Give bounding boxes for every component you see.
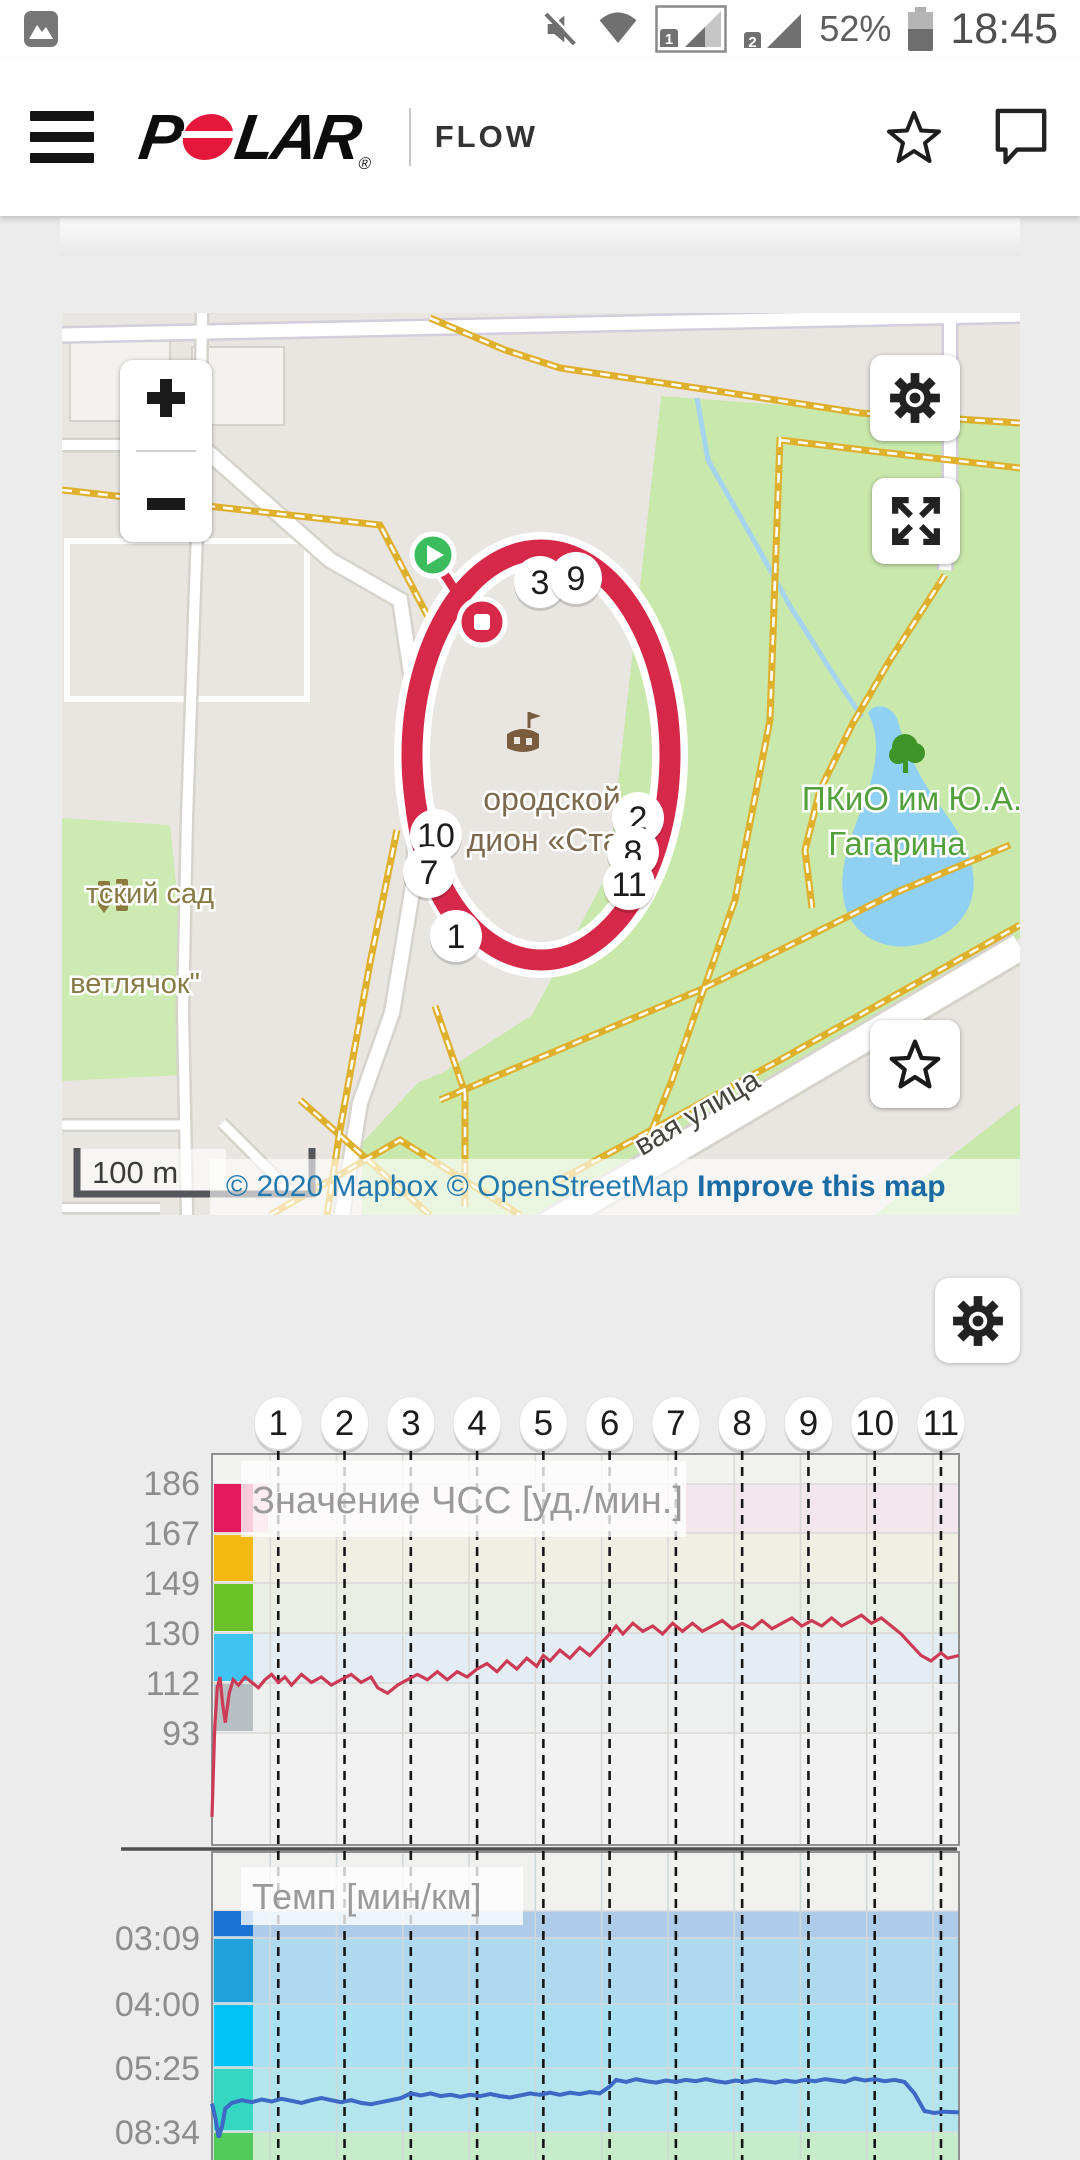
svg-text:167: 167 bbox=[143, 1515, 200, 1553]
axis-tick-labels: 1861671491301129303:0904:0005:2508:34 bbox=[115, 1465, 200, 2152]
map-settings-button[interactable] bbox=[870, 355, 960, 441]
svg-text:1: 1 bbox=[665, 31, 673, 48]
status-bar: 1 2 52% 18:45 bbox=[0, 0, 1080, 58]
park-label-1: ПКиО им Ю.А. bbox=[802, 780, 1020, 817]
kindergarten-label-1: тский сад bbox=[86, 878, 214, 910]
svg-text:93: 93 bbox=[162, 1715, 200, 1753]
svg-text:5: 5 bbox=[534, 1404, 553, 1443]
screenshot-notification-icon bbox=[22, 10, 60, 48]
svg-text:4: 4 bbox=[467, 1404, 486, 1443]
km-marker-row[interactable]: 1234567891011 bbox=[254, 1397, 965, 1454]
flow-wordmark: FLOW bbox=[435, 119, 538, 155]
stop-marker bbox=[459, 599, 505, 645]
svg-text:04:00: 04:00 bbox=[115, 1986, 200, 2024]
svg-text:149: 149 bbox=[143, 1565, 200, 1603]
svg-text:08:34: 08:34 bbox=[115, 2114, 200, 2152]
sim2-signal-icon: 2 bbox=[743, 6, 803, 52]
star-icon bbox=[887, 1036, 943, 1092]
svg-text:1: 1 bbox=[269, 1404, 288, 1443]
scale-label: 100 m bbox=[92, 1155, 178, 1191]
kindergarten-label-2: ветлячок" bbox=[70, 968, 200, 1000]
zoom-divider bbox=[136, 450, 196, 452]
svg-text:8: 8 bbox=[732, 1404, 751, 1443]
svg-text:03:09: 03:09 bbox=[115, 1920, 200, 1958]
svg-text:186: 186 bbox=[143, 1465, 200, 1503]
svg-text:130: 130 bbox=[143, 1615, 200, 1653]
svg-text:1: 1 bbox=[447, 918, 466, 956]
sim1-signal-icon: 1 bbox=[655, 5, 727, 53]
polar-flow-activity-page: { "status_bar": {"time": "18:45", "batte… bbox=[0, 0, 1080, 2160]
svg-text:6: 6 bbox=[600, 1404, 619, 1443]
zoom-out-button[interactable] bbox=[143, 481, 189, 527]
app-header: P LAR ® FLOW bbox=[0, 58, 1080, 216]
polar-logo[interactable]: P LAR ® bbox=[135, 100, 380, 174]
battery-icon bbox=[907, 7, 934, 52]
svg-text:112: 112 bbox=[146, 1665, 200, 1703]
svg-text:05:25: 05:25 bbox=[115, 2050, 200, 2088]
mute-icon bbox=[541, 9, 581, 49]
polar-logo-o bbox=[179, 114, 235, 160]
pace-chart-title: Темп [мин/км] bbox=[252, 1876, 481, 1917]
kindergarten-green bbox=[62, 818, 184, 1081]
svg-text:2: 2 bbox=[335, 1404, 354, 1443]
fullscreen-button[interactable] bbox=[872, 478, 960, 564]
attribution-text: © 2020 Mapbox © OpenStreetMap bbox=[226, 1170, 697, 1204]
activity-charts[interactable]: Значение ЧСС [уд./мин.] Темп [мин/км] 18… bbox=[0, 1215, 1080, 2160]
svg-text:3: 3 bbox=[401, 1404, 420, 1443]
park-label-2: Гагарина bbox=[828, 825, 966, 862]
zoom-in-button[interactable] bbox=[143, 375, 189, 421]
svg-text:11: 11 bbox=[611, 866, 646, 904]
card-top-strip bbox=[60, 218, 1020, 256]
start-marker bbox=[412, 534, 454, 576]
map-attribution: © 2020 Mapbox © OpenStreetMap Improve th… bbox=[210, 1159, 1020, 1215]
wifi-icon bbox=[597, 9, 639, 49]
svg-text:7: 7 bbox=[666, 1404, 685, 1443]
gear-icon bbox=[889, 372, 941, 424]
svg-text:3: 3 bbox=[531, 564, 550, 602]
battery-percent: 52% bbox=[819, 8, 891, 50]
improve-map-link[interactable]: Improve this map bbox=[697, 1170, 945, 1204]
fullscreen-icon bbox=[891, 496, 941, 546]
route-map[interactable]: ородской с дион «Стар ПКиО им Ю.А. Гагар… bbox=[62, 313, 1020, 1215]
feedback-chat-icon[interactable] bbox=[992, 106, 1050, 168]
favorite-star-icon[interactable] bbox=[884, 107, 944, 167]
stadium-label-1: ородской bbox=[483, 781, 620, 817]
svg-text:9: 9 bbox=[799, 1404, 818, 1443]
map-favorite-button[interactable] bbox=[870, 1020, 960, 1108]
svg-text:7: 7 bbox=[420, 854, 439, 892]
zoom-control bbox=[120, 360, 212, 542]
svg-text:10: 10 bbox=[855, 1404, 894, 1443]
header-divider bbox=[409, 108, 411, 166]
menu-button[interactable] bbox=[30, 111, 94, 163]
pace-zone-squares bbox=[214, 1911, 253, 2160]
svg-text:11: 11 bbox=[923, 1404, 959, 1443]
svg-text:2: 2 bbox=[749, 34, 757, 51]
svg-text:9: 9 bbox=[567, 560, 586, 598]
status-icons: 1 2 52% 18:45 bbox=[541, 5, 1058, 54]
hr-chart-title: Значение ЧСС [уд./мин.] bbox=[252, 1480, 683, 1522]
clock: 18:45 bbox=[950, 5, 1058, 54]
